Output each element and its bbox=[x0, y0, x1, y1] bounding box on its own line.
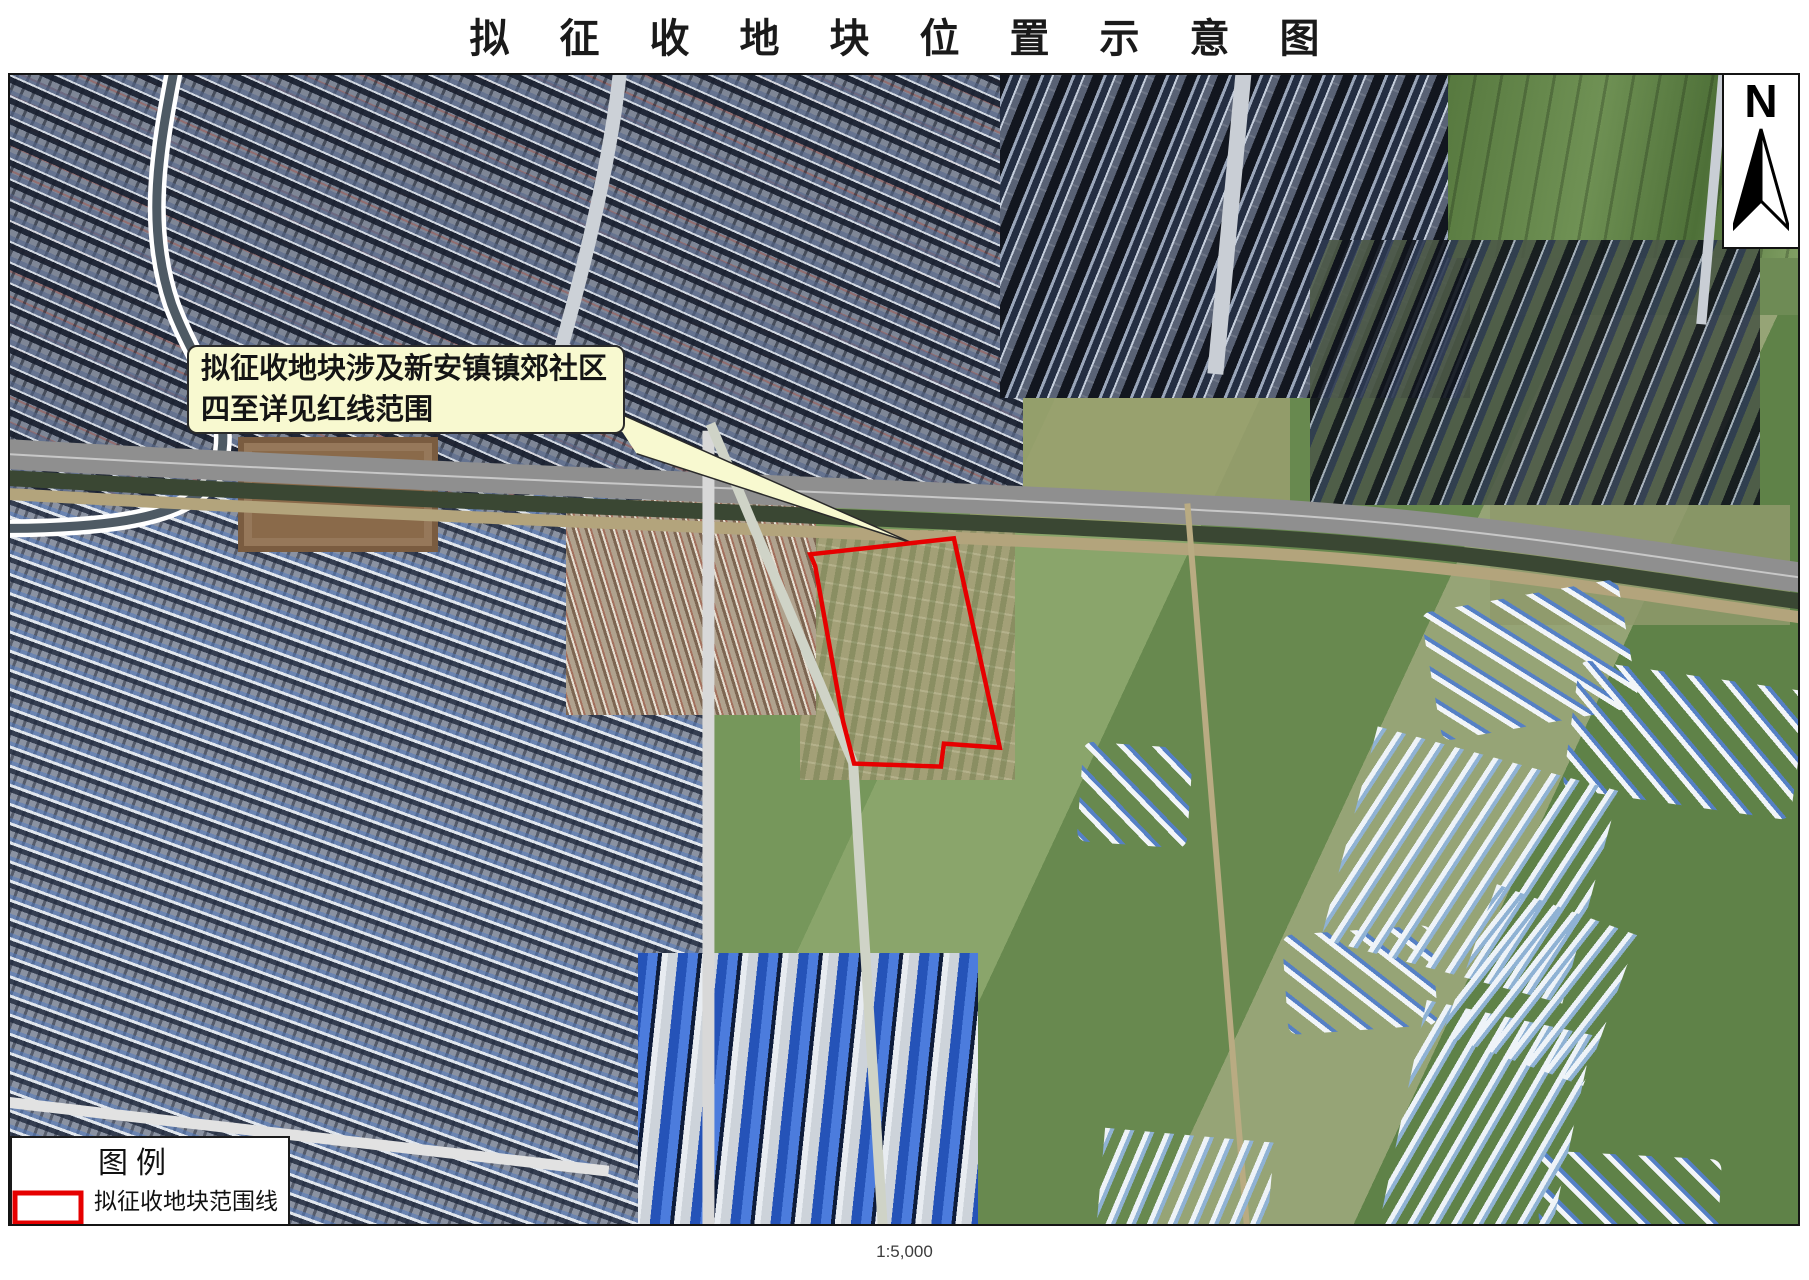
annotation-layer bbox=[10, 75, 1798, 1224]
callout-leader bbox=[607, 408, 913, 544]
map-scale-label: 1:5,000 bbox=[0, 1242, 1809, 1262]
legend-title: 图例 bbox=[98, 1138, 174, 1182]
page: 拟 征 收 地 块 位 置 示 意 图 bbox=[0, 0, 1809, 1280]
north-arrow-box: N bbox=[1722, 75, 1798, 249]
page-title: 拟 征 收 地 块 位 置 示 意 图 bbox=[0, 6, 1809, 64]
legend: 图例 拟征收地块范围线 bbox=[10, 1136, 290, 1226]
north-arrow-icon bbox=[1733, 127, 1789, 233]
north-label: N bbox=[1724, 75, 1798, 127]
callout-box: 拟征收地块涉及新安镇镇郊社区 四至详见红线范围 bbox=[187, 345, 625, 434]
callout-line1: 拟征收地块涉及新安镇镇郊社区 bbox=[201, 349, 611, 390]
callout-line2: 四至详见红线范围 bbox=[201, 390, 611, 431]
legend-item-label: 拟征收地块范围线 bbox=[94, 1182, 278, 1216]
parcel-boundary-redline bbox=[810, 538, 1000, 766]
satellite-map-canvas: 拟征收地块涉及新安镇镇郊社区 四至详见红线范围 N 图例 拟征收地块范围线 bbox=[8, 73, 1800, 1226]
parcel-line-swatch bbox=[12, 1190, 84, 1226]
